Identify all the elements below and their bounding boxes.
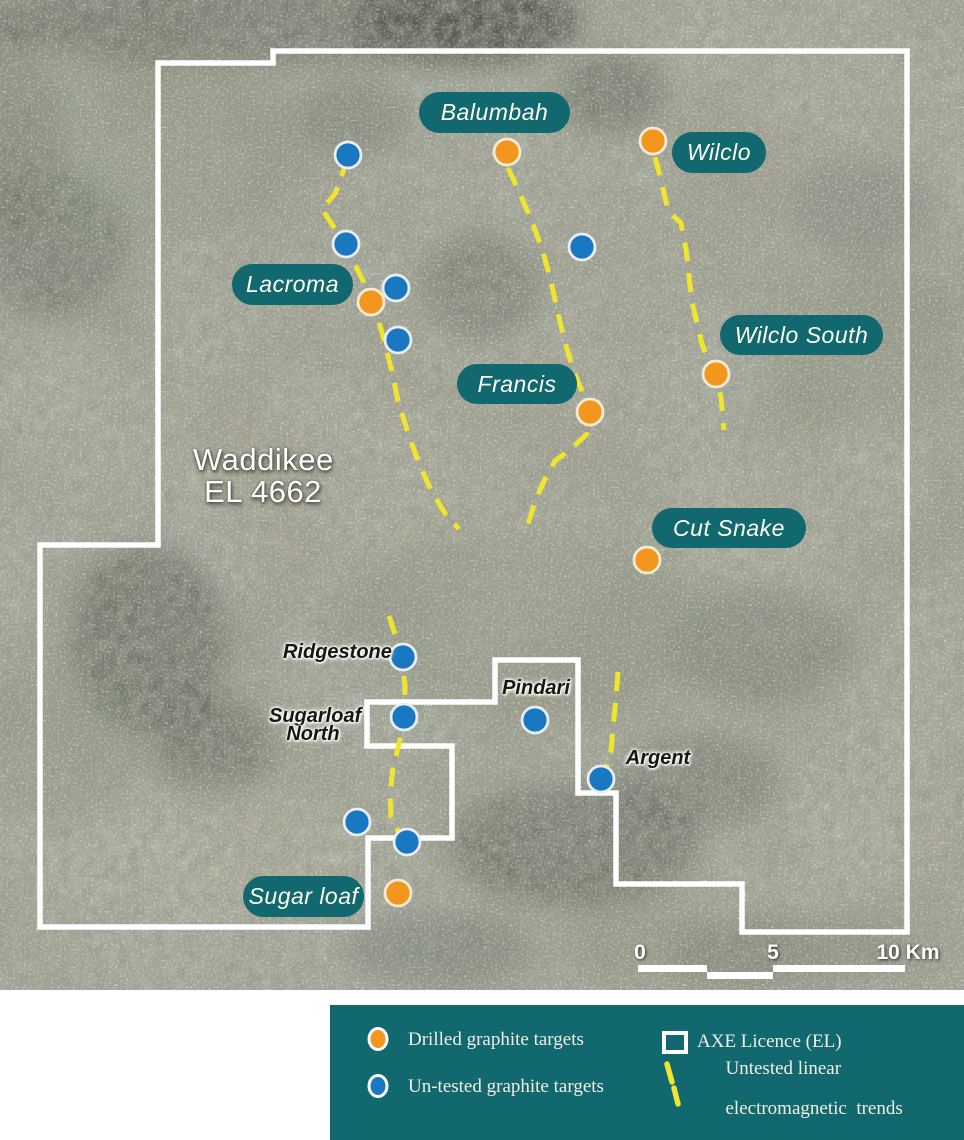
drilled-target-marker — [634, 547, 660, 573]
untested-target-marker — [588, 766, 614, 792]
untested-target-marker — [569, 234, 595, 260]
drilled-target-marker — [577, 399, 603, 425]
untested-target-marker — [383, 275, 409, 301]
drilled-target-marker — [385, 880, 411, 906]
untested-target-marker — [333, 231, 359, 257]
untested-target-marker — [385, 327, 411, 353]
drilled-target-marker — [494, 139, 520, 165]
drilled-target-marker — [358, 289, 384, 315]
map-figure: Waddikee EL 4662 0510 Km BalumbahWilcloL… — [0, 0, 964, 1140]
legend-drilled-label: Drilled graphite targets — [408, 1029, 584, 1051]
untested-target-icon — [368, 1074, 389, 1098]
untested-target-marker — [335, 142, 361, 168]
satellite-imagery — [0, 0, 964, 990]
legend-untested-label: Un-tested graphite targets — [408, 1076, 604, 1098]
legend-trend-label-line2: electromagnetic trends — [726, 1098, 903, 1119]
untested-target-marker — [390, 644, 416, 670]
satellite-map: Waddikee EL 4662 0510 Km BalumbahWilcloL… — [0, 0, 964, 990]
untested-target-marker — [344, 809, 370, 835]
legend-panel: Drilled graphite targets Un-tested graph… — [330, 1005, 964, 1140]
untested-target-marker — [394, 829, 420, 855]
legend-trend-label: Untested linear electromagnetic trends — [697, 1039, 903, 1139]
licence-outline-icon — [662, 1031, 688, 1054]
untested-target-marker — [391, 704, 417, 730]
untested-target-marker — [522, 707, 548, 733]
drilled-target-marker — [640, 128, 666, 154]
drilled-target-marker — [703, 361, 729, 387]
legend-trend-label-line1: Untested linear — [726, 1058, 842, 1079]
drilled-target-icon — [368, 1027, 389, 1051]
trend-dash-icon — [662, 1061, 682, 1107]
